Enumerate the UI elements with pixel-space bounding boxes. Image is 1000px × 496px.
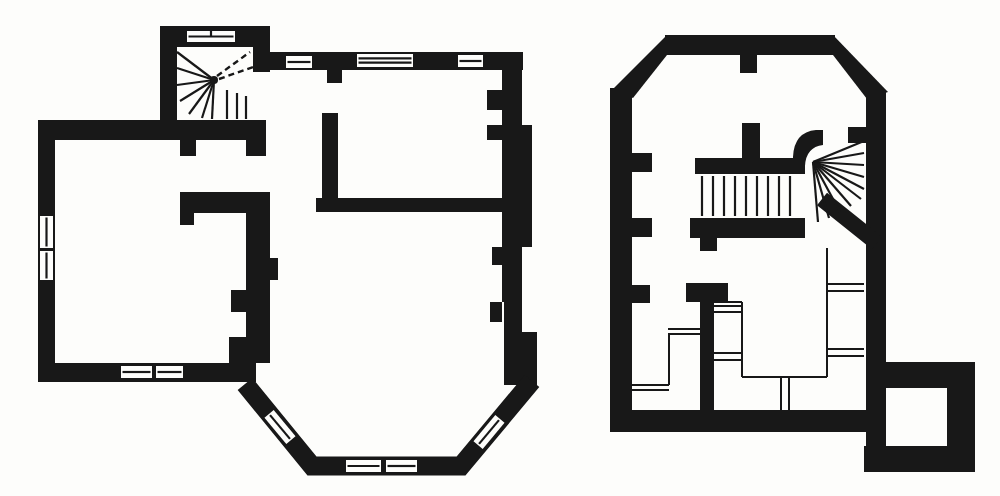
outer-wall-right-lower <box>502 247 522 302</box>
chimney-wall <box>246 192 270 363</box>
partition-stem <box>700 283 714 413</box>
stair-wall-upper <box>695 158 795 174</box>
scanned-figure-page <box>0 0 1000 496</box>
window-west-2 <box>40 251 53 280</box>
right-floor-plan <box>610 35 975 472</box>
outer-wall-right-e <box>504 332 537 385</box>
outer-wall-top-left <box>38 120 266 140</box>
wall-bump-a <box>492 247 502 265</box>
pier-west-2 <box>632 218 652 237</box>
window-south-1 <box>121 366 152 378</box>
stair-wall-lower-stub <box>700 238 717 251</box>
left-floor-plan <box>38 26 537 472</box>
outer-wall-south <box>610 410 866 432</box>
stair-tread-line <box>813 162 861 199</box>
room-partition-west <box>322 113 338 198</box>
stair-wall-lower <box>690 218 805 238</box>
window-south-2 <box>156 366 183 378</box>
room-partition-south <box>316 198 503 212</box>
door-jamb-west <box>180 140 196 156</box>
floor-plan-svg <box>0 0 1000 496</box>
pier-north <box>740 55 757 73</box>
pier-west-1 <box>632 153 652 172</box>
chimney-pier-north <box>231 290 246 312</box>
chamfer-northeast <box>833 35 888 99</box>
door-jamb-east <box>246 140 266 156</box>
window-north-3 <box>458 55 483 67</box>
stair-direction-dashed-line <box>219 66 256 79</box>
pilaster-lower <box>487 125 502 140</box>
stair-tread-line <box>189 80 214 114</box>
outer-wall-north <box>665 35 835 55</box>
window-west-1 <box>40 216 53 248</box>
chimney-bump <box>270 258 278 280</box>
outer-wall-right-d <box>504 302 522 332</box>
wall-bump-b <box>490 302 502 322</box>
annex-wall-south <box>864 446 975 472</box>
stair-tread-line <box>813 153 864 162</box>
hall-partition-stub <box>180 213 194 225</box>
outer-wall-right-mid <box>502 125 532 247</box>
room-door-stub <box>327 70 342 83</box>
window-north-2 <box>357 54 413 67</box>
window-north-1 <box>286 56 312 68</box>
stair-wall-stub <box>742 123 760 160</box>
outer-wall-right-upper <box>502 70 522 125</box>
pier-west-3 <box>632 285 650 303</box>
chimney-pier-south <box>229 337 246 363</box>
stair-direction-dashed-line <box>217 52 250 76</box>
bay-window-bottom-2 <box>386 460 417 472</box>
outer-wall-east <box>866 90 886 448</box>
stair-tread-line <box>177 68 214 80</box>
turret-window <box>187 31 235 42</box>
pilaster-upper <box>487 90 502 110</box>
stair-tread-line <box>177 52 214 80</box>
outer-wall-west <box>610 88 632 432</box>
stair-newel <box>210 76 218 84</box>
bay-window-bottom-1 <box>346 460 381 472</box>
